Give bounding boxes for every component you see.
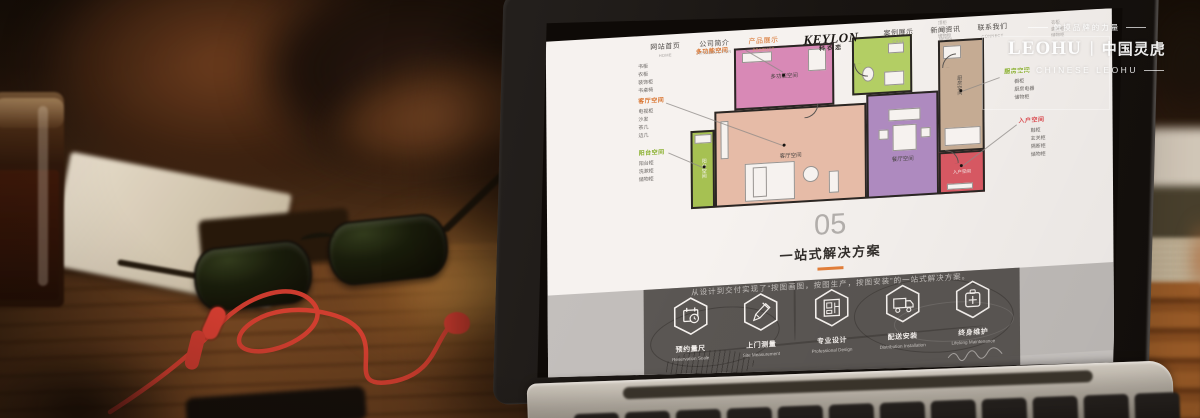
nav-product-en: PRODUCT	[749, 46, 779, 53]
feature-maintenance[interactable]: 终身维护 Lifelong Maintenance	[939, 278, 1007, 346]
mason-jar-drink	[0, 92, 64, 307]
keyboard-key	[981, 398, 1028, 418]
feature-installation[interactable]: 配送安装 Distribution Installation	[868, 283, 936, 351]
nav-case-zh: 案例展示	[883, 27, 913, 39]
keyboard-key	[829, 403, 876, 418]
feature-design[interactable]: 专业设计 Professional Design	[798, 287, 866, 355]
callout-balcony: 阳台空间 阳台柜 洗漱柜 储物柜	[639, 147, 665, 185]
shield-cross-icon	[956, 279, 990, 319]
callout-living: 客厅空间 电视柜 沙发 茶几 边几	[638, 95, 664, 141]
photo-scene: 网站首页 HOME 公司简介 INTRODUCTION 产品展示 PRODUCT…	[0, 0, 1200, 418]
room-living: 客厅空间	[714, 103, 867, 208]
nav-home-en: HOME	[650, 52, 680, 59]
nav-case-en: CASE	[884, 38, 914, 45]
nav-news-en: NEWS	[931, 35, 961, 42]
truck-icon	[885, 284, 919, 324]
nav-item-case[interactable]: 案例展示 CASE	[883, 27, 913, 45]
jar-rim	[0, 98, 64, 128]
keyboard-key	[778, 405, 825, 418]
nav-news-zh: 新闻资讯	[930, 24, 960, 36]
room-balcony: 阳台空间	[690, 130, 715, 209]
watermark-line	[1028, 27, 1048, 28]
watermark-frame	[982, 36, 1110, 110]
watermark-line	[1144, 70, 1164, 71]
blueprint-icon	[815, 288, 849, 328]
room-dining: 餐厅空间	[866, 90, 939, 198]
nav-item-product[interactable]: 产品展示 PRODUCT	[748, 35, 778, 53]
room-kitchen: 厨房空间	[938, 38, 985, 153]
watermark-tagline: 触摸品牌的力量	[1054, 22, 1121, 33]
keylon-logo[interactable]: KEYLON 科衣恋	[803, 30, 858, 53]
keyboard-key	[574, 413, 621, 418]
keyboard-key	[625, 411, 672, 418]
leohu-watermark: 触摸品牌的力量 LEOHU｜中国灵虎 CHINESE LEOHU	[986, 22, 1188, 75]
watermark-brand-zh: 中国灵虎	[1102, 41, 1166, 58]
nav-item-home[interactable]: 网站首页 HOME	[650, 41, 680, 59]
feature-measurement[interactable]: 上门测量 Site Measurement	[727, 291, 795, 359]
watermark-tagline-row: 触摸品牌的力量	[986, 22, 1188, 33]
watermark-line	[1126, 27, 1146, 28]
nav-item-news[interactable]: 新闻资讯 NEWS	[930, 24, 960, 42]
nav-item-introduction[interactable]: 公司简介 INTRODUCTION	[697, 38, 731, 56]
keyboard-key	[1134, 392, 1181, 418]
calendar-clock-icon	[673, 296, 707, 336]
keyboard-key	[676, 409, 723, 418]
earbud-right	[444, 312, 470, 334]
keyboard-key	[727, 407, 774, 418]
nav-home-zh: 网站首页	[650, 41, 680, 53]
keyboard-key	[880, 401, 927, 418]
section-underline	[817, 266, 843, 271]
nav-introduction-en: INTRODUCTION	[697, 49, 731, 56]
keyboard-key	[1083, 394, 1130, 418]
jar-highlight	[38, 106, 48, 286]
nav-introduction-zh: 公司简介	[697, 38, 731, 50]
handwriting-signature	[946, 344, 1006, 364]
jar-liquid	[0, 170, 59, 300]
callout-entry: 入户空间 鞋柜 玄关柜 隔断柜 储物柜	[1018, 114, 1045, 160]
nav-product-zh: 产品展示	[748, 35, 778, 47]
logo-en: KEYLON	[803, 30, 858, 46]
pencil-ruler-icon	[744, 292, 778, 332]
feature-reservation[interactable]: 预约量尺 Reservation Scale	[656, 295, 724, 363]
callout-multifunction-list: 书柜 衣柜 装饰柜 书桌椅	[638, 59, 653, 95]
keyboard-key	[930, 399, 977, 418]
keyboard-key	[1032, 396, 1079, 418]
